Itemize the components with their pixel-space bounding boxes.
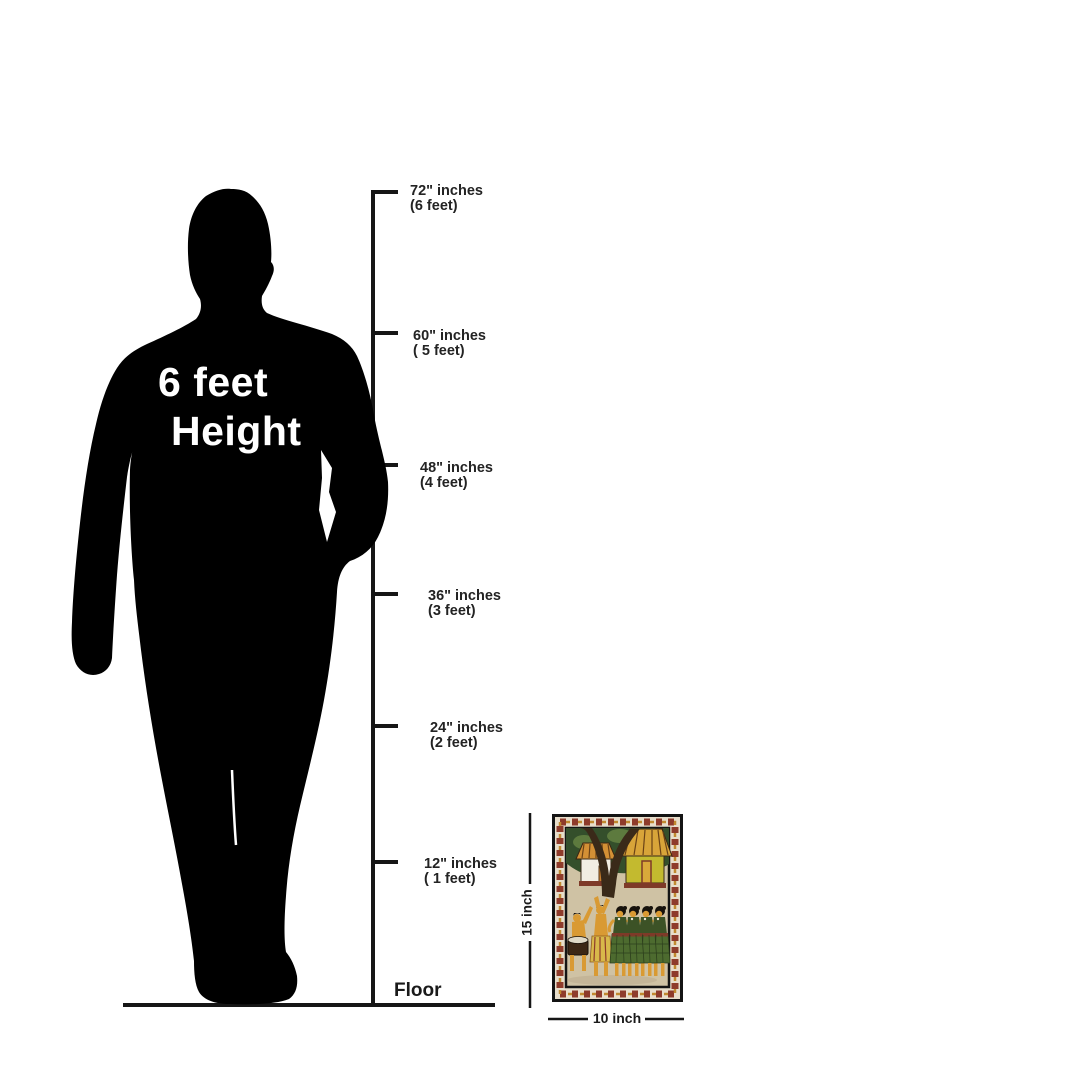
- hut-right-door: [642, 861, 651, 883]
- mark-label-60: 60" inches ( 5 feet): [413, 329, 486, 359]
- mark-36-inches: 36" inches: [428, 589, 501, 604]
- artwork-height-label: 15 inch: [520, 873, 535, 953]
- height-title-line2: Height: [171, 407, 302, 456]
- artwork-painting: [552, 814, 683, 1002]
- size-comparison-graphic: 6 feet Height 72" inches (6 feet) 60" in…: [0, 0, 1080, 1080]
- mark-60-inches: 60" inches: [413, 329, 486, 344]
- mark-24-feet: (2 feet): [430, 736, 503, 751]
- mark-60-feet: ( 5 feet): [413, 344, 486, 359]
- mark-72-inches: 72" inches: [410, 184, 483, 199]
- man-silhouette-body: [72, 189, 389, 1005]
- height-title: 6 feet Height: [158, 358, 302, 456]
- mark-12-inches: 12" inches: [424, 857, 497, 872]
- diagram-canvas: [0, 0, 1080, 1080]
- mark-48-feet: (4 feet): [420, 476, 493, 491]
- mark-12-feet: ( 1 feet): [424, 872, 497, 887]
- ground-shadow: [567, 975, 657, 985]
- mark-label-24: 24" inches (2 feet): [430, 721, 503, 751]
- artwork-width-label: 10 inch: [589, 1010, 645, 1026]
- mark-48-inches: 48" inches: [420, 461, 493, 476]
- mark-label-36: 36" inches (3 feet): [428, 589, 501, 619]
- height-title-line1: 6 feet: [158, 358, 302, 407]
- mark-label-48: 48" inches (4 feet): [420, 461, 493, 491]
- floor-label: Floor: [394, 980, 442, 1002]
- mark-72-feet: (6 feet): [410, 199, 483, 214]
- mark-24-inches: 24" inches: [430, 721, 503, 736]
- mark-36-feet: (3 feet): [428, 604, 501, 619]
- man-silhouette: [72, 189, 389, 1005]
- mark-label-12: 12" inches ( 1 feet): [424, 857, 497, 887]
- mark-label-72: 72" inches (6 feet): [410, 184, 483, 214]
